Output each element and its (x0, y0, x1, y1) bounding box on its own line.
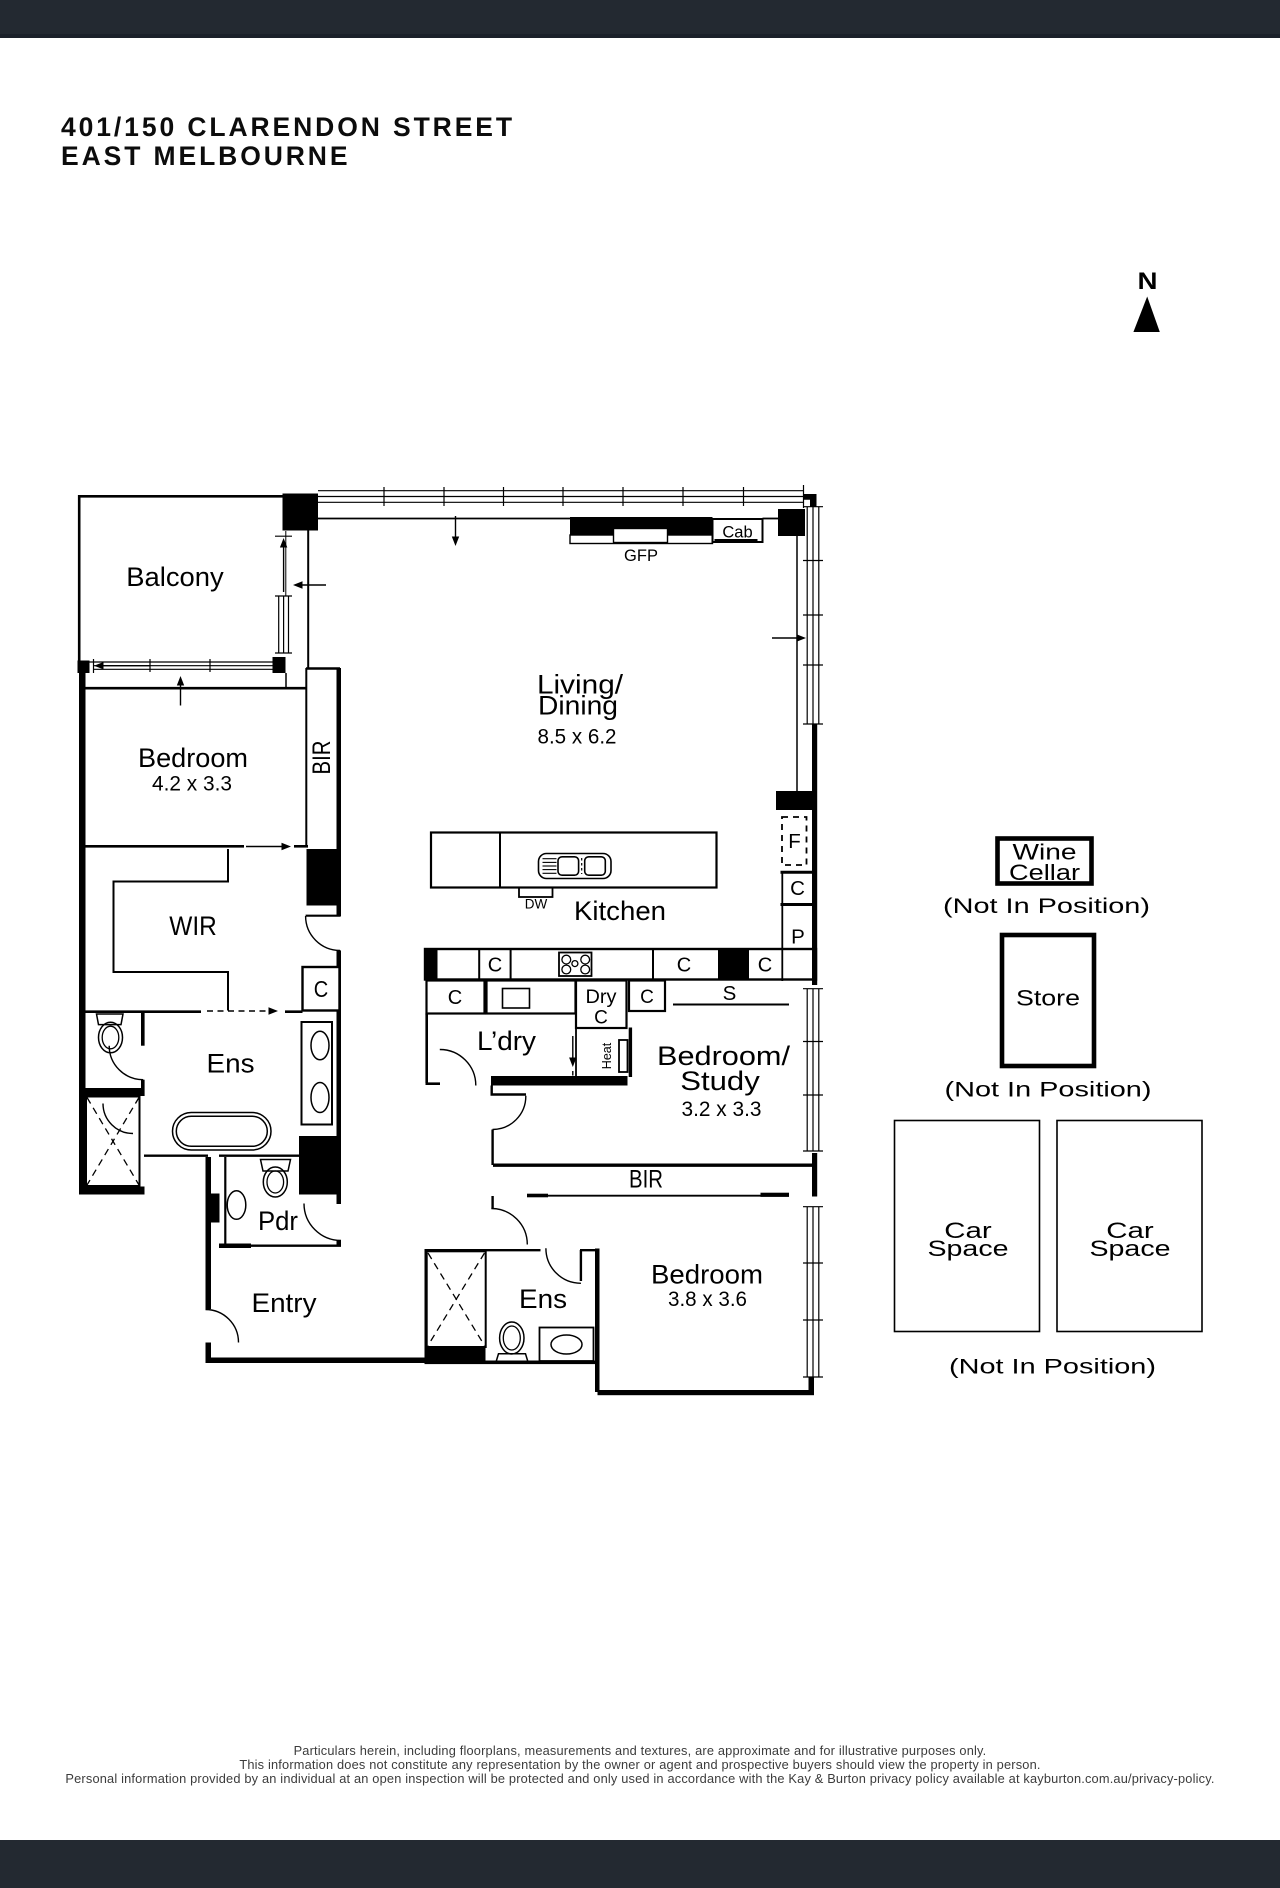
svg-text:P: P (791, 926, 805, 949)
svg-text:3.2 x 3.3: 3.2 x 3.3 (682, 1097, 762, 1121)
svg-text:Study: Study (680, 1066, 760, 1096)
svg-text:Ens: Ens (519, 1284, 567, 1314)
svg-text:Heat: Heat (600, 1042, 614, 1069)
svg-text:4.2 x 3.3: 4.2 x 3.3 (152, 772, 232, 796)
svg-text:8.5 x 6.2: 8.5 x 6.2 (538, 725, 617, 749)
svg-text:BIR: BIR (308, 741, 336, 775)
svg-text:Dining: Dining (538, 691, 618, 721)
svg-text:(Not In Position): (Not In Position) (943, 894, 1150, 918)
svg-text:Cellar: Cellar (1009, 860, 1080, 885)
svg-text:(Not In Position): (Not In Position) (945, 1078, 1152, 1102)
svg-text:S: S (723, 982, 737, 1005)
svg-text:C: C (640, 987, 654, 1008)
svg-text:Entry: Entry (252, 1288, 318, 1318)
svg-text:C: C (488, 955, 502, 977)
svg-text:WIR: WIR (169, 911, 217, 941)
svg-text:Space: Space (928, 1236, 1009, 1261)
svg-text:C: C (758, 955, 772, 977)
svg-text:3.8 x 3.6: 3.8 x 3.6 (668, 1287, 747, 1311)
svg-text:N: N (1138, 268, 1158, 295)
svg-text:C: C (594, 1008, 608, 1029)
svg-text:C: C (677, 955, 691, 977)
svg-text:DW: DW (525, 897, 548, 912)
svg-text:L’dry: L’dry (477, 1026, 537, 1056)
svg-text:Store: Store (1016, 986, 1080, 1011)
svg-text:C: C (314, 976, 329, 1002)
svg-text:Space: Space (1090, 1236, 1171, 1261)
svg-text:C: C (448, 987, 462, 1009)
svg-text:Balcony: Balcony (126, 562, 224, 592)
svg-text:Bedroom: Bedroom (651, 1260, 763, 1290)
svg-text:Ens: Ens (207, 1049, 255, 1079)
svg-text:Dry: Dry (586, 987, 618, 1008)
svg-text:F: F (788, 830, 801, 853)
svg-text:C: C (790, 877, 805, 900)
svg-text:Bedroom: Bedroom (138, 743, 248, 773)
svg-text:Pdr: Pdr (258, 1206, 298, 1236)
svg-text:(Not In Position): (Not In Position) (949, 1355, 1156, 1379)
svg-text:GFP: GFP (624, 547, 658, 565)
svg-text:Cab: Cab (722, 524, 752, 542)
svg-text:BIR: BIR (629, 1166, 663, 1194)
svg-text:Kitchen: Kitchen (574, 896, 666, 926)
